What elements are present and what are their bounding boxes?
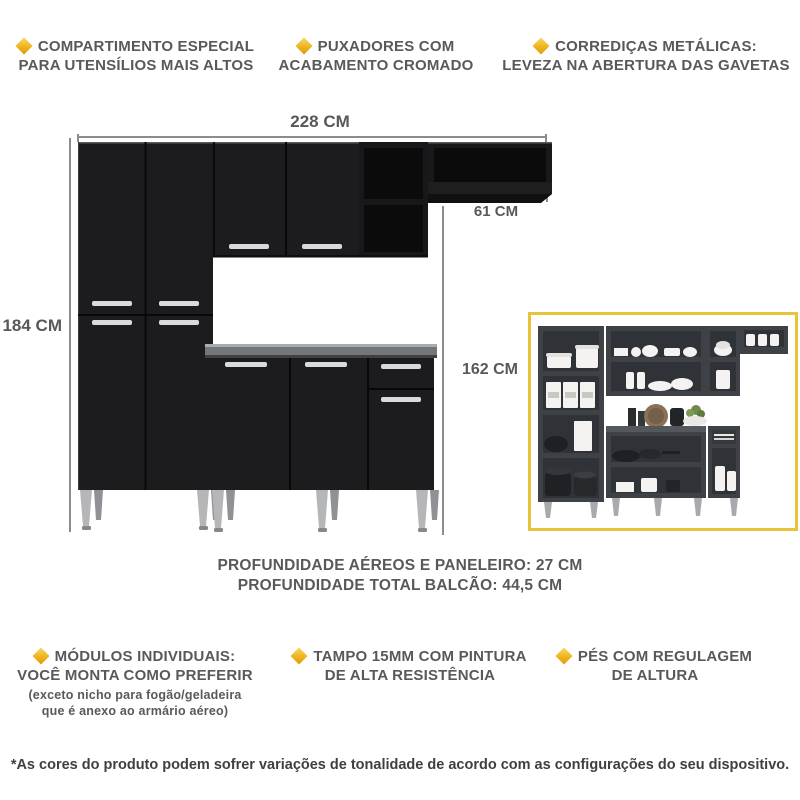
styled-photo-inset (528, 312, 798, 531)
adjustable-feet (80, 490, 439, 532)
inset-counter (606, 404, 707, 498)
feature-metal-slides: CORREDIÇAS METÁLICAS: LEVEZA NA ABERTURA… (496, 38, 796, 75)
dimension-left-height: 184 CM (2, 316, 62, 336)
cabinet-drawing (0, 110, 560, 560)
feature-text: CORREDIÇAS METÁLICAS: (555, 38, 757, 55)
feature-tall-compartment: COMPARTIMENTO ESPECIAL PARA UTENSÍLIOS M… (5, 38, 267, 75)
feature-line-1: PÉS COM REGULAGEM (530, 648, 780, 667)
feature-line-2: ACABAMENTO CROMADO (272, 57, 480, 76)
dimension-total-width: 228 CM (250, 112, 390, 132)
feature-line-2: DE ALTA RESISTÊNCIA (275, 667, 545, 686)
dimension-shelf-width: 61 CM (446, 203, 546, 220)
feature-line-1: PUXADORES COM (272, 38, 480, 57)
feature-tabletop: TAMPO 15MM COM PINTURA DE ALTA RESISTÊNC… (275, 648, 545, 685)
dimension-right-height: 162 CM (450, 361, 530, 379)
feature-text: PÉS COM REGULAGEM (578, 648, 752, 665)
diamond-icon (555, 648, 572, 665)
cabinet-diagram: 228 CM 184 CM 61 CM 162 CM (0, 110, 560, 560)
feature-text: TAMPO 15MM COM PINTURA (313, 648, 526, 665)
feature-text: COMPARTIMENTO ESPECIAL (38, 38, 254, 55)
inset-upper-niche (706, 326, 740, 396)
feature-line-1: COMPARTIMENTO ESPECIAL (5, 38, 267, 57)
depth-line-2: PROFUNDIDADE TOTAL BALCÃO: 44,5 CM (0, 576, 800, 596)
inset-wall-shelf (740, 326, 788, 354)
counter-cabinet (205, 344, 437, 490)
feature-line-2: LEVEZA NA ABERTURA DAS GAVETAS (496, 57, 796, 76)
feature-line-1: MÓDULOS INDIVIDUAIS: (5, 648, 265, 667)
diamond-icon (291, 648, 308, 665)
feature-text: PUXADORES COM (318, 38, 455, 55)
upper-cabinet (213, 142, 428, 258)
depth-line-1: PROFUNDIDADE AÉREOS E PANELEIRO: 27 CM (0, 556, 800, 576)
feature-adjustable-feet: PÉS COM REGULAGEM DE ALTURA (530, 648, 780, 685)
countertop (205, 344, 437, 347)
feature-line-1: CORREDIÇAS METÁLICAS: (496, 38, 796, 57)
inset-photo-illustration (534, 318, 792, 525)
inset-pantry-shelves (538, 326, 604, 502)
diamond-icon (32, 648, 49, 665)
feature-line-2: PARA UTENSÍLIOS MAIS ALTOS (5, 57, 267, 76)
depth-info: PROFUNDIDADE AÉREOS E PANELEIRO: 27 CM P… (0, 556, 800, 596)
color-disclaimer: *As cores do produto podem sofrer variaç… (0, 757, 800, 773)
feature-line-1: TAMPO 15MM COM PINTURA (275, 648, 545, 667)
feature-chrome-handles: PUXADORES COM ACABAMENTO CROMADO (272, 38, 480, 75)
feature-line-2: VOCÊ MONTA COMO PREFERIR (5, 667, 265, 686)
diamond-icon (533, 38, 550, 55)
inset-upper-shelves (606, 326, 706, 396)
inset-counter-drawer (708, 426, 740, 498)
feature-line-2: DE ALTURA (530, 667, 780, 686)
drawer-divider (369, 388, 434, 390)
feature-note-line-2: que é anexo ao armário aéreo) (5, 703, 265, 719)
diamond-icon (15, 38, 32, 55)
diamond-icon (295, 38, 312, 55)
feature-note-line-1: (exceto nicho para fogão/geladeira (5, 687, 265, 703)
product-infographic: COMPARTIMENTO ESPECIAL PARA UTENSÍLIOS M… (0, 0, 800, 800)
feature-text: MÓDULOS INDIVIDUAIS: (55, 648, 236, 665)
pantry-cabinet (78, 142, 213, 490)
wall-shelf (428, 142, 552, 203)
feature-individual-modules: MÓDULOS INDIVIDUAIS: VOCÊ MONTA COMO PRE… (5, 648, 265, 719)
